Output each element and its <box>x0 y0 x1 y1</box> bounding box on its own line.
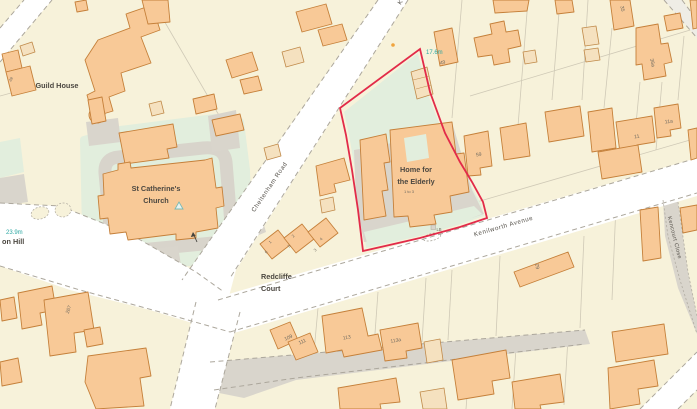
building <box>0 297 17 321</box>
label-redcliffe-line2: Court <box>261 284 281 293</box>
building <box>588 108 616 152</box>
label-1-to-3: 1 to 3 <box>404 189 415 194</box>
label-guild-house: Guild House <box>36 81 79 90</box>
verge-green <box>0 138 24 178</box>
label-church-line1: St Catherine's <box>132 184 181 193</box>
building <box>75 0 88 12</box>
letter-box-icon <box>431 225 436 230</box>
building <box>582 26 599 46</box>
building-35 <box>610 0 634 30</box>
label-redcliffe-line1: Redcliffe <box>261 272 292 281</box>
building <box>420 388 447 409</box>
house-number-11: 11 <box>634 134 640 141</box>
house-number-11a: 11a <box>664 118 673 125</box>
building <box>0 358 22 386</box>
building <box>149 101 164 116</box>
label-home-line1: Home for <box>400 165 432 174</box>
site-plan-map: Guild House St Catherine's Church Home f… <box>0 0 697 409</box>
label-on-hill: on Hill <box>2 237 24 246</box>
label-home-line2: the Elderly <box>397 177 435 186</box>
point-marker-icon <box>391 43 395 47</box>
building <box>320 197 335 213</box>
building <box>640 207 661 261</box>
spot-height-17-6m: 17.6m <box>426 50 443 56</box>
map-symbol-lb-label: LB <box>436 227 441 232</box>
building <box>84 327 103 347</box>
building <box>493 0 529 13</box>
building <box>584 48 600 62</box>
courtyard <box>404 134 429 162</box>
building <box>545 106 584 142</box>
building <box>500 123 530 160</box>
label-church-line2: Church <box>143 196 169 205</box>
map-canvas[interactable]: Guild House St Catherine's Church Home f… <box>0 0 697 409</box>
spot-height-23-9m: 23.9m <box>6 230 23 236</box>
building-garage <box>424 339 443 363</box>
building <box>680 205 697 233</box>
building <box>664 13 683 31</box>
building <box>523 50 537 64</box>
paved-area <box>0 174 28 206</box>
building <box>555 0 574 14</box>
